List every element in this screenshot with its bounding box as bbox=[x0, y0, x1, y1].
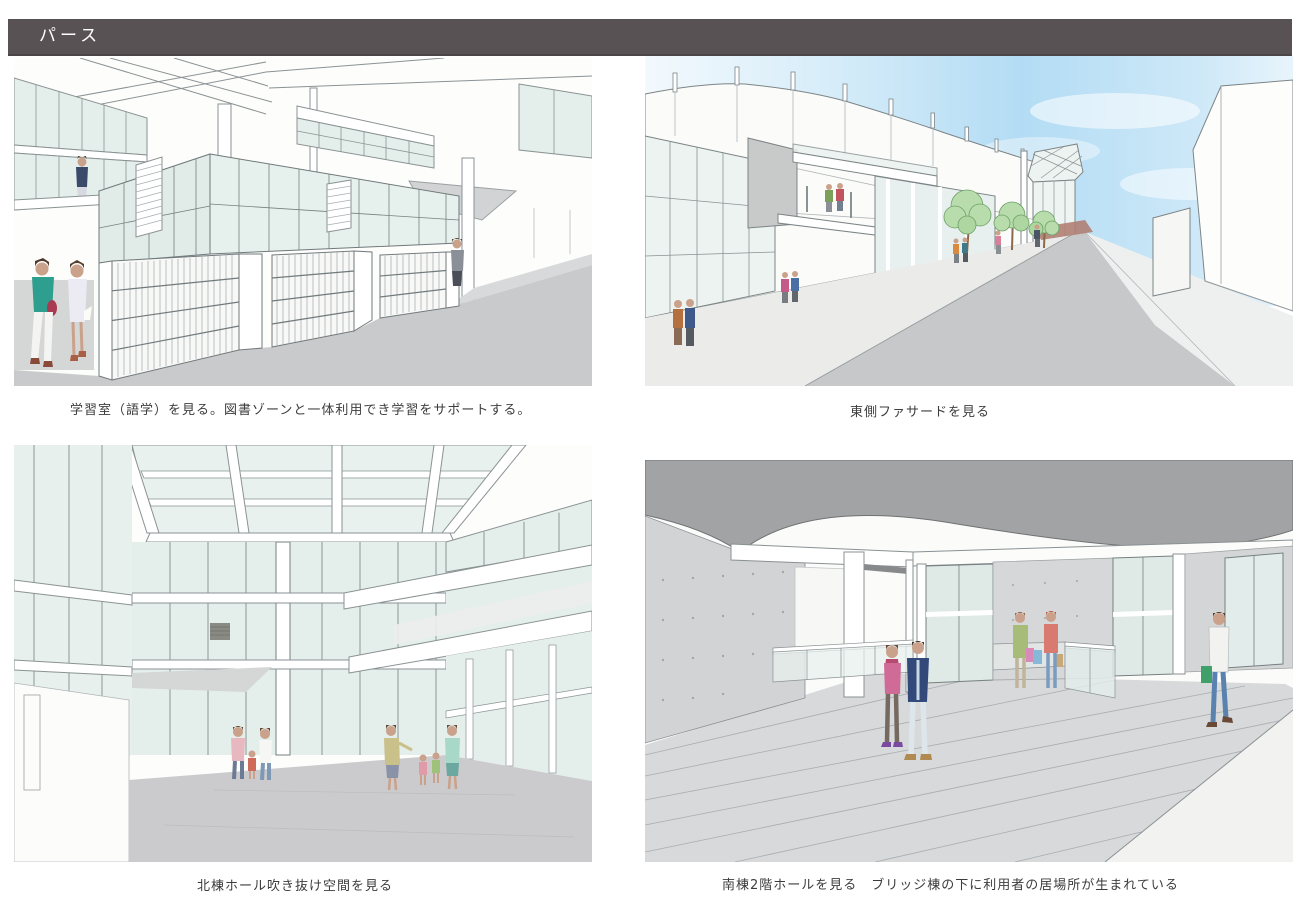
foreground-wall bbox=[14, 683, 129, 862]
page-title: パース bbox=[8, 19, 1292, 54]
section-header-bar: パース bbox=[8, 19, 1292, 56]
figure-north-hall-atrium bbox=[14, 445, 592, 862]
figure-east-facade bbox=[645, 56, 1293, 386]
caption-study-room: 学習室（語学）を見る。図書ゾーンと一体利用でき学習をサポートする。 bbox=[70, 399, 531, 418]
presentation-page: パース bbox=[0, 0, 1300, 924]
east-facade-rendering bbox=[645, 56, 1293, 386]
caption-east-facade: 東側ファサードを見る bbox=[850, 401, 990, 420]
figure-study-room bbox=[14, 58, 592, 386]
study-room-rendering bbox=[14, 58, 592, 386]
atrium-rendering bbox=[14, 445, 592, 862]
caption-north-hall: 北棟ホール吹き抜け空間を見る bbox=[197, 875, 393, 894]
figure-south-hall-2f bbox=[645, 460, 1293, 862]
caption-south-hall: 南棟2階ホールを見る ブリッジ棟の下に利用者の居場所が生まれている bbox=[722, 874, 1179, 893]
south-hall-rendering bbox=[645, 460, 1293, 862]
